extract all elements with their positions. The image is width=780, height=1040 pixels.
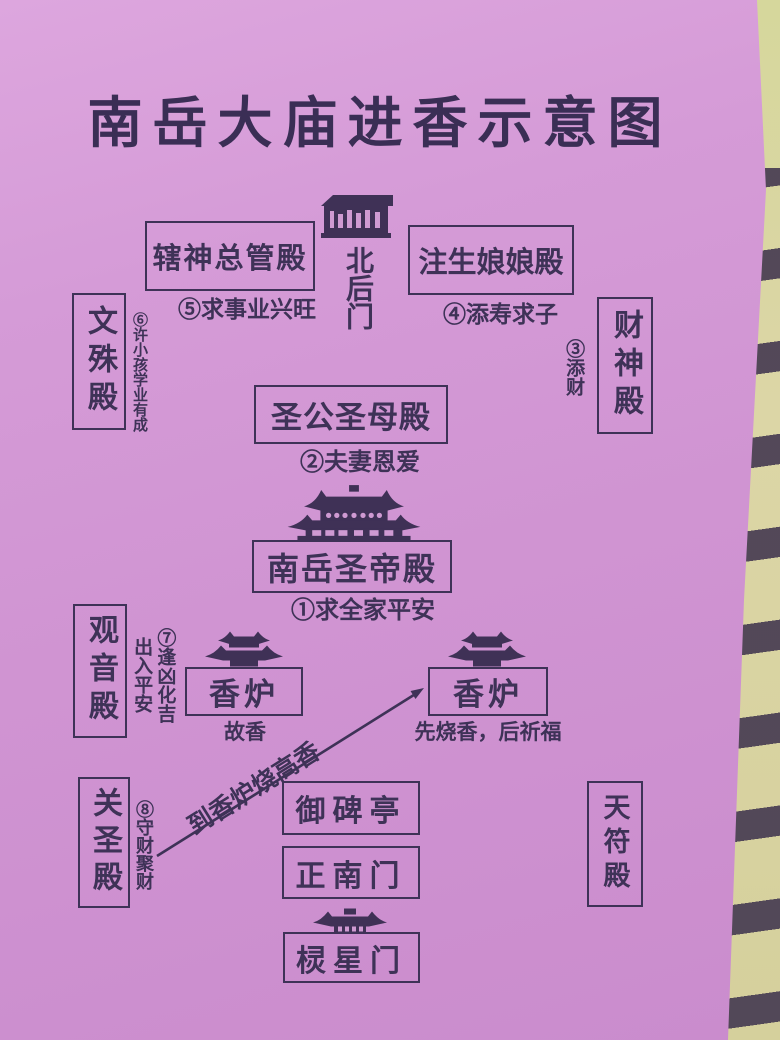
note-study: ⑥许小孩学业有成 [129,306,150,438]
hall-label: 天符殿 [596,793,635,895]
pavilion-roof-icon [446,629,528,667]
lingxing-gate-roof-icon [311,904,389,933]
north-gate-building-icon [318,194,396,240]
hall-label: 香炉 [453,669,523,714]
grand-hall-roof-icon [283,481,425,540]
hall-incense-burner-left: 香炉 [185,667,303,716]
hall-label: 正南门 [296,851,407,895]
hall-tianfu: 天符殿 [587,781,643,907]
note-couple: ②夫妻恩爱 [290,450,430,477]
hall-incense-burner-right: 香炉 [428,667,548,716]
note-family-safety: ①求全家平安 [288,598,438,625]
hall-label: 财神殿 [603,309,647,423]
note-longevity-children: ④添寿求子 [428,302,573,328]
hall-label: 文殊殿 [77,305,121,419]
hall-caishen: 财神殿 [597,297,653,434]
hall-nanyue-shengdi: 南岳圣帝殿 [252,540,452,593]
hall-label: 棂星门 [296,936,407,980]
pavilion-roof-icon [203,629,285,667]
hall-label: 注生娘娘殿 [418,239,563,281]
hall-label: 关圣殿 [82,787,126,898]
hall-wenshu: 文殊殿 [72,293,126,430]
hall-guanyin: 观音殿 [73,604,127,738]
page-title: 南岳大庙进香示意图 [55,78,705,158]
hall-lingxingmen: 棂星门 [283,932,420,983]
note-guard-wealth: ⑧守财聚财 [132,795,154,895]
note-wealth: ③添财 [562,334,585,400]
hall-yubeiting: 御碑亭 [282,781,420,835]
hall-label: 辖神总管殿 [152,235,307,277]
note-old-incense: 故香 [205,721,285,745]
hall-label: 圣公圣母殿 [271,392,431,437]
hall-label: 北后门 [338,246,378,330]
note-safe-travel: ⑦逢凶化吉 出入平安 [130,620,176,730]
hall-xiashen-zongguan: 辖神总管殿 [145,221,315,291]
note-burn-first-pray-after: 先烧香，后祈福 [403,721,573,745]
note-career: ⑤求事业兴旺 [158,297,336,323]
hall-zhengnanmen: 正南门 [282,846,420,899]
hall-zhusheng-niangniang: 注生娘娘殿 [408,225,574,295]
hall-shenggong-shengmu: 圣公圣母殿 [254,385,448,444]
hall-guansheng: 关圣殿 [78,777,130,908]
hall-label: 香炉 [209,669,279,714]
hall-label: 观音殿 [78,614,122,728]
north-gate-label: 北后门 [340,240,376,336]
hall-label: 南岳圣帝殿 [267,544,437,590]
hall-label: 御碑亭 [296,786,407,830]
